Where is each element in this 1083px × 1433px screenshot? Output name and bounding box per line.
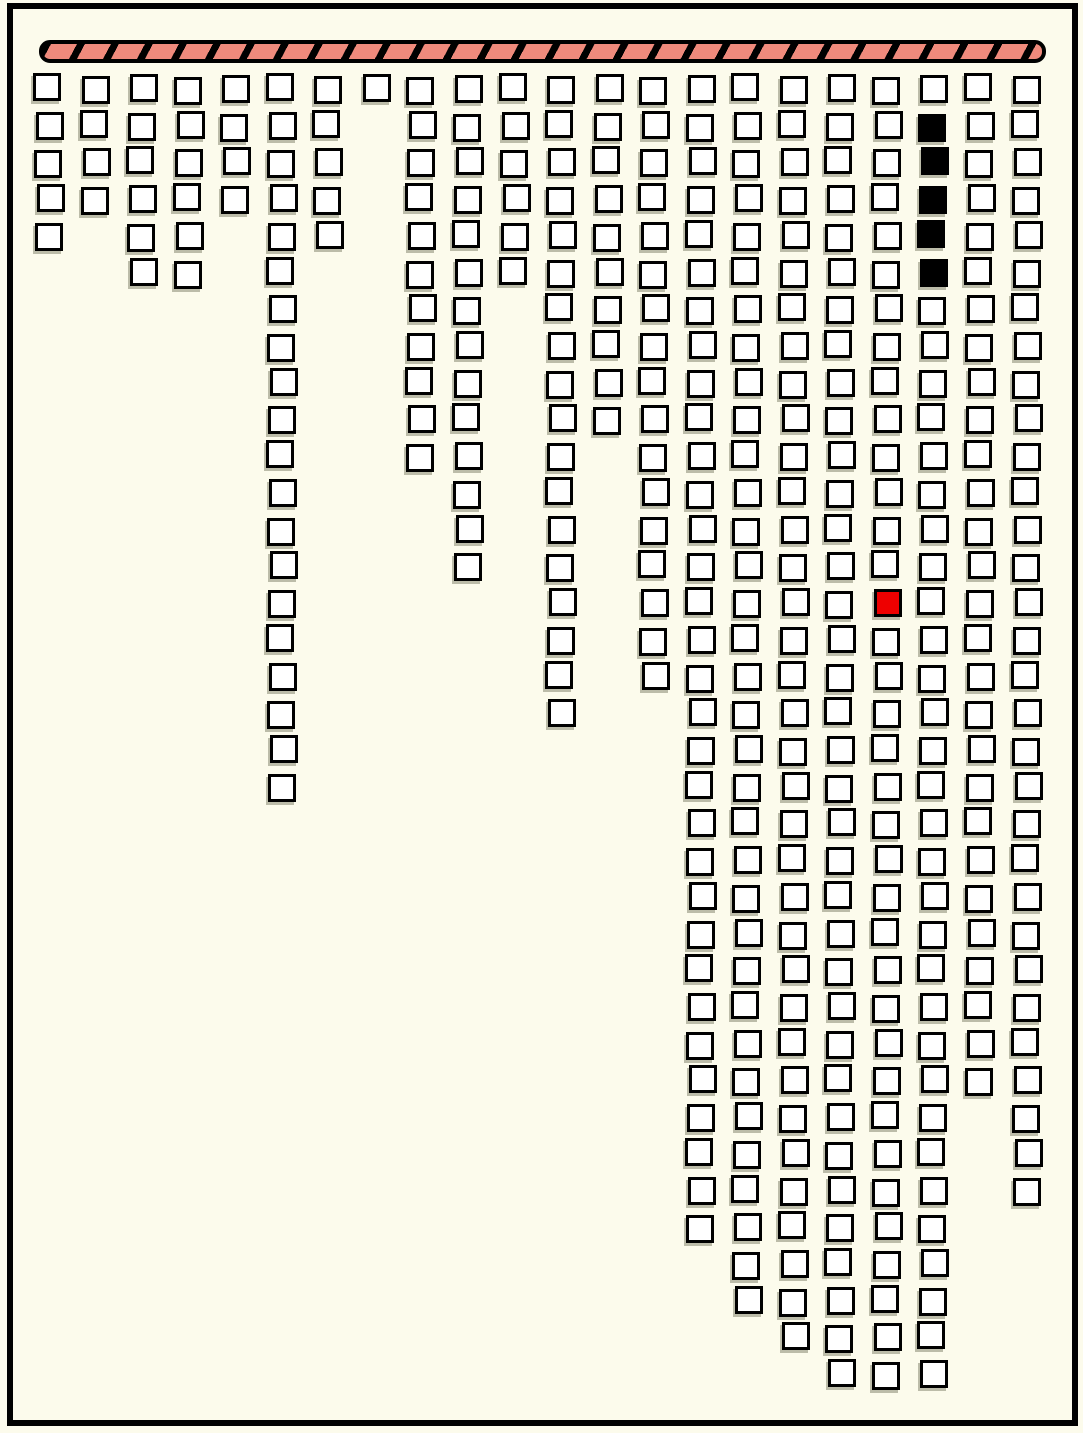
chain-cell (828, 74, 856, 102)
chain-cell (267, 150, 295, 178)
chain-cell (733, 1141, 761, 1169)
chain-cell (918, 297, 946, 325)
chain-cell (266, 624, 294, 652)
chain-cell (732, 885, 760, 913)
chain-cell (408, 222, 436, 250)
chain-cell (267, 334, 295, 362)
chain-cell (921, 1065, 949, 1093)
chain-cell (874, 1140, 902, 1168)
chain-cell (689, 1065, 717, 1093)
chain-cell (827, 736, 855, 764)
chain-cell (871, 183, 899, 211)
chain-cell (779, 187, 807, 215)
chain-cell (267, 701, 295, 729)
chain-cell (1011, 661, 1039, 689)
chain-cell (687, 370, 715, 398)
chain-cell (781, 148, 809, 176)
chain-cell (548, 332, 576, 360)
chain-cell (363, 74, 391, 102)
chain-cell (871, 1101, 899, 1129)
chain-cell (406, 77, 434, 105)
chain-cell (782, 1322, 810, 1350)
chain-cell (640, 333, 668, 361)
chain-cell (732, 518, 760, 546)
chain-cell (1014, 516, 1042, 544)
black-cell (920, 259, 948, 287)
chain-cell (641, 589, 669, 617)
chain-cell (453, 114, 481, 142)
chain-cell (269, 112, 297, 140)
chain-cell (734, 112, 762, 140)
chain-cell (266, 440, 294, 468)
chain-cell (82, 76, 110, 104)
chain-cell (871, 918, 899, 946)
chain-cell (1014, 883, 1042, 911)
chain-cell (826, 1031, 854, 1059)
chain-cell (732, 150, 760, 178)
chain-cell (872, 444, 900, 472)
chain-cell (1012, 1105, 1040, 1133)
chain-cell (966, 957, 994, 985)
chain-cell (825, 1325, 853, 1353)
chain-cell (1014, 1066, 1042, 1094)
chain-cell (828, 1359, 856, 1387)
chain-cell (549, 404, 577, 432)
chain-cell (828, 808, 856, 836)
chain-cell (126, 146, 154, 174)
chain-cell (778, 844, 806, 872)
chain-cell (733, 774, 761, 802)
chain-cell (638, 550, 666, 578)
chain-cell (827, 1103, 855, 1131)
chain-cell (731, 257, 759, 285)
chain-cell (685, 403, 713, 431)
chain-cell (781, 699, 809, 727)
chain-cell (968, 919, 996, 947)
chain-cell (639, 261, 667, 289)
chain-cell (778, 1028, 806, 1056)
chain-cell (918, 481, 946, 509)
chain-cell (778, 293, 806, 321)
chain-cell (688, 626, 716, 654)
chain-cell (1012, 554, 1040, 582)
chain-cell (731, 991, 759, 1019)
chain-cell (685, 1138, 713, 1166)
chain-cell (734, 846, 762, 874)
chain-cell (824, 1064, 852, 1092)
chain-cell (455, 442, 483, 470)
chain-cell (917, 1138, 945, 1166)
chain-cell (1013, 810, 1041, 838)
chain-cell (920, 809, 948, 837)
chain-cell (593, 407, 621, 435)
chain-cell (872, 1179, 900, 1207)
chain-cell (453, 481, 481, 509)
chain-cell (917, 587, 945, 615)
chain-cell (409, 111, 437, 139)
chain-cell (266, 257, 294, 285)
chain-cell (1012, 371, 1040, 399)
chain-cell (873, 149, 901, 177)
chain-cell (734, 1213, 762, 1241)
chain-cell (1011, 1028, 1039, 1056)
chain-cell (782, 772, 810, 800)
chain-cell (130, 258, 158, 286)
chain-cell (454, 186, 482, 214)
chain-cell (313, 187, 341, 215)
chain-cell (502, 112, 530, 140)
chain-cell (1012, 187, 1040, 215)
chain-cell (917, 771, 945, 799)
chain-cell (966, 406, 994, 434)
chain-cell (968, 551, 996, 579)
chain-cell (780, 443, 808, 471)
chain-cell (687, 737, 715, 765)
chain-cell (174, 261, 202, 289)
chain-cell (734, 479, 762, 507)
chain-cell (406, 444, 434, 472)
chain-cell (640, 517, 668, 545)
chain-cell (685, 587, 713, 615)
chain-cell (638, 183, 666, 211)
chain-cell (1015, 772, 1043, 800)
chain-cell (688, 809, 716, 837)
chain-cell (686, 665, 714, 693)
chain-cell (452, 403, 480, 431)
chain-cell (639, 444, 667, 472)
chain-cell (826, 480, 854, 508)
chain-cell (455, 259, 483, 287)
chain-cell (872, 77, 900, 105)
chain-cell (873, 700, 901, 728)
chain-cell (549, 588, 577, 616)
black-cell (919, 186, 947, 214)
chain-cell (686, 481, 714, 509)
chain-cell (871, 367, 899, 395)
chain-cell (824, 514, 852, 542)
chain-cell (686, 1032, 714, 1060)
chain-cell (781, 1250, 809, 1278)
chain-cell (270, 551, 298, 579)
chain-cell (918, 848, 946, 876)
chain-cell (453, 297, 481, 325)
chain-cell (873, 884, 901, 912)
chain-cell (964, 257, 992, 285)
chain-cell (456, 331, 484, 359)
chain-cell (731, 440, 759, 468)
chain-cell (778, 110, 806, 138)
chain-cell (455, 75, 483, 103)
chain-cell (592, 146, 620, 174)
chain-cell (779, 1289, 807, 1317)
chain-cell (130, 74, 158, 102)
chain-cell (81, 187, 109, 215)
chain-cell (733, 223, 761, 251)
chain-cell (547, 443, 575, 471)
chain-cell (828, 625, 856, 653)
chain-cell (1011, 477, 1039, 505)
chain-cell (1014, 699, 1042, 727)
chain-cell (919, 553, 947, 581)
chain-cell (223, 147, 251, 175)
chain-cell (37, 184, 65, 212)
chain-cell (685, 771, 713, 799)
chain-cell (545, 477, 573, 505)
chain-cell (456, 515, 484, 543)
chain-cell (129, 185, 157, 213)
chain-cell (545, 110, 573, 138)
chain-cell (966, 223, 994, 251)
chain-cell (967, 663, 995, 691)
chain-cell (687, 1104, 715, 1132)
chain-cell (780, 76, 808, 104)
chain-cell (639, 77, 667, 105)
chain-cell (965, 885, 993, 913)
chain-grid (0, 0, 1083, 1433)
chain-cell (874, 405, 902, 433)
chain-cell (735, 1286, 763, 1314)
chain-cell (781, 516, 809, 544)
chain-cell (781, 883, 809, 911)
chain-cell (687, 553, 715, 581)
chain-cell (781, 332, 809, 360)
chain-cell (732, 701, 760, 729)
chain-cell (967, 1030, 995, 1058)
chain-cell (826, 664, 854, 692)
chain-cell (965, 1068, 993, 1096)
chain-cell (592, 330, 620, 358)
chain-cell (780, 627, 808, 655)
chain-cell (873, 1251, 901, 1279)
chain-cell (828, 258, 856, 286)
chain-cell (548, 148, 576, 176)
chain-cell (594, 113, 622, 141)
chain-cell (778, 661, 806, 689)
chain-cell (1015, 955, 1043, 983)
chain-cell (826, 296, 854, 324)
chain-cell (920, 75, 948, 103)
chain-cell (967, 295, 995, 323)
chain-cell (173, 183, 201, 211)
chain-cell (128, 113, 156, 141)
chain-cell (735, 1102, 763, 1130)
chain-cell (917, 954, 945, 982)
chain-cell (454, 370, 482, 398)
chain-cell (268, 223, 296, 251)
chain-cell (919, 1104, 947, 1132)
chain-cell (735, 919, 763, 947)
chain-cell (735, 368, 763, 396)
chain-cell (779, 1105, 807, 1133)
chain-cell (546, 187, 574, 215)
chain-cell (688, 1177, 716, 1205)
chain-cell (1015, 1139, 1043, 1167)
chain-cell (967, 846, 995, 874)
chain-cell (965, 518, 993, 546)
chain-cell (408, 405, 436, 433)
chain-cell (545, 293, 573, 321)
chain-cell (780, 260, 808, 288)
chain-cell (685, 954, 713, 982)
chain-cell (827, 369, 855, 397)
chain-cell (874, 773, 902, 801)
chain-cell (918, 665, 946, 693)
chain-cell (735, 184, 763, 212)
chain-cell (873, 517, 901, 545)
chain-cell (921, 1249, 949, 1277)
chain-cell (595, 185, 623, 213)
chain-cell (547, 260, 575, 288)
chain-cell (782, 221, 810, 249)
chain-cell (222, 75, 250, 103)
chain-cell (873, 333, 901, 361)
chain-cell (964, 807, 992, 835)
chain-cell (269, 479, 297, 507)
chain-cell (409, 294, 437, 322)
chain-cell (1015, 588, 1043, 616)
chain-cell (176, 222, 204, 250)
chain-cell (456, 147, 484, 175)
chain-cell (638, 367, 666, 395)
chain-cell (503, 184, 531, 212)
chain-cell (1013, 76, 1041, 104)
chain-cell (778, 477, 806, 505)
chain-cell (918, 1032, 946, 1060)
chain-cell (269, 663, 297, 691)
chain-cell (1012, 738, 1040, 766)
chain-cell (641, 405, 669, 433)
chain-cell (824, 330, 852, 358)
chain-cell (1012, 922, 1040, 950)
chain-cell (688, 75, 716, 103)
black-cell (917, 220, 945, 248)
chain-cell (828, 441, 856, 469)
chain-cell (270, 184, 298, 212)
chain-cell (546, 554, 574, 582)
chain-cell (828, 1176, 856, 1204)
chain-cell (83, 148, 111, 176)
chain-cell (1013, 627, 1041, 655)
chain-cell (731, 807, 759, 835)
chain-cell (266, 73, 294, 101)
chain-cell (824, 697, 852, 725)
chain-cell (734, 1030, 762, 1058)
chain-cell (733, 590, 761, 618)
chain-cell (827, 1287, 855, 1315)
chain-cell (967, 479, 995, 507)
chain-cell (919, 1288, 947, 1316)
chain-cell (1015, 221, 1043, 249)
chain-cell (782, 1139, 810, 1167)
chain-cell (499, 73, 527, 101)
chain-cell (779, 554, 807, 582)
chain-cell (642, 662, 670, 690)
chain-cell (596, 258, 624, 286)
chain-cell (315, 148, 343, 176)
chain-cell (827, 552, 855, 580)
chain-cell (545, 661, 573, 689)
chain-cell (407, 149, 435, 177)
chain-cell (872, 811, 900, 839)
chain-cell (732, 334, 760, 362)
chain-cell (827, 185, 855, 213)
black-cell (921, 147, 949, 175)
chain-cell (968, 735, 996, 763)
chain-cell (1013, 443, 1041, 471)
chain-cell (731, 73, 759, 101)
chain-cell (1013, 994, 1041, 1022)
chain-cell (778, 1211, 806, 1239)
chain-cell (406, 261, 434, 289)
red-cell (874, 589, 902, 617)
chain-cell (314, 76, 342, 104)
chain-cell (34, 150, 62, 178)
chain-cell (127, 224, 155, 252)
chain-cell (825, 407, 853, 435)
chain-cell (1015, 404, 1043, 432)
chain-cell (825, 775, 853, 803)
chain-cell (689, 698, 717, 726)
chain-cell (826, 847, 854, 875)
chain-cell (782, 955, 810, 983)
chain-cell (731, 1175, 759, 1203)
chain-cell (316, 221, 344, 249)
chain-cell (640, 149, 668, 177)
chain-cell (826, 113, 854, 141)
chain-cell (826, 1214, 854, 1242)
chain-cell (874, 222, 902, 250)
chain-cell (917, 403, 945, 431)
chain-cell (642, 294, 670, 322)
chain-cell (921, 331, 949, 359)
chain-cell (221, 186, 249, 214)
chain-cell (873, 1067, 901, 1095)
chain-cell (779, 371, 807, 399)
chain-cell (735, 551, 763, 579)
canvas-background: { "scene": { "canvas": { "width": 1083, … (0, 0, 1083, 1433)
chain-cell (548, 516, 576, 544)
chain-cell (1014, 332, 1042, 360)
chain-cell (689, 147, 717, 175)
chain-cell (687, 186, 715, 214)
chain-cell (919, 370, 947, 398)
chain-cell (312, 110, 340, 138)
chain-cell (875, 845, 903, 873)
chain-cell (965, 334, 993, 362)
chain-cell (686, 848, 714, 876)
chain-cell (595, 369, 623, 397)
chain-cell (871, 734, 899, 762)
chain-cell (921, 882, 949, 910)
chain-cell (267, 518, 295, 546)
chain-cell (874, 1323, 902, 1351)
chain-cell (268, 406, 296, 434)
chain-cell (639, 628, 667, 656)
chain-cell (733, 406, 761, 434)
chain-cell (734, 663, 762, 691)
chain-cell (547, 76, 575, 104)
chain-cell (269, 295, 297, 323)
chain-cell (270, 368, 298, 396)
chain-cell (968, 184, 996, 212)
chain-cell (500, 150, 528, 178)
black-cell (918, 114, 946, 142)
chain-cell (919, 921, 947, 949)
chain-cell (733, 957, 761, 985)
chain-cell (268, 774, 296, 802)
chain-cell (825, 224, 853, 252)
chain-cell (501, 223, 529, 251)
